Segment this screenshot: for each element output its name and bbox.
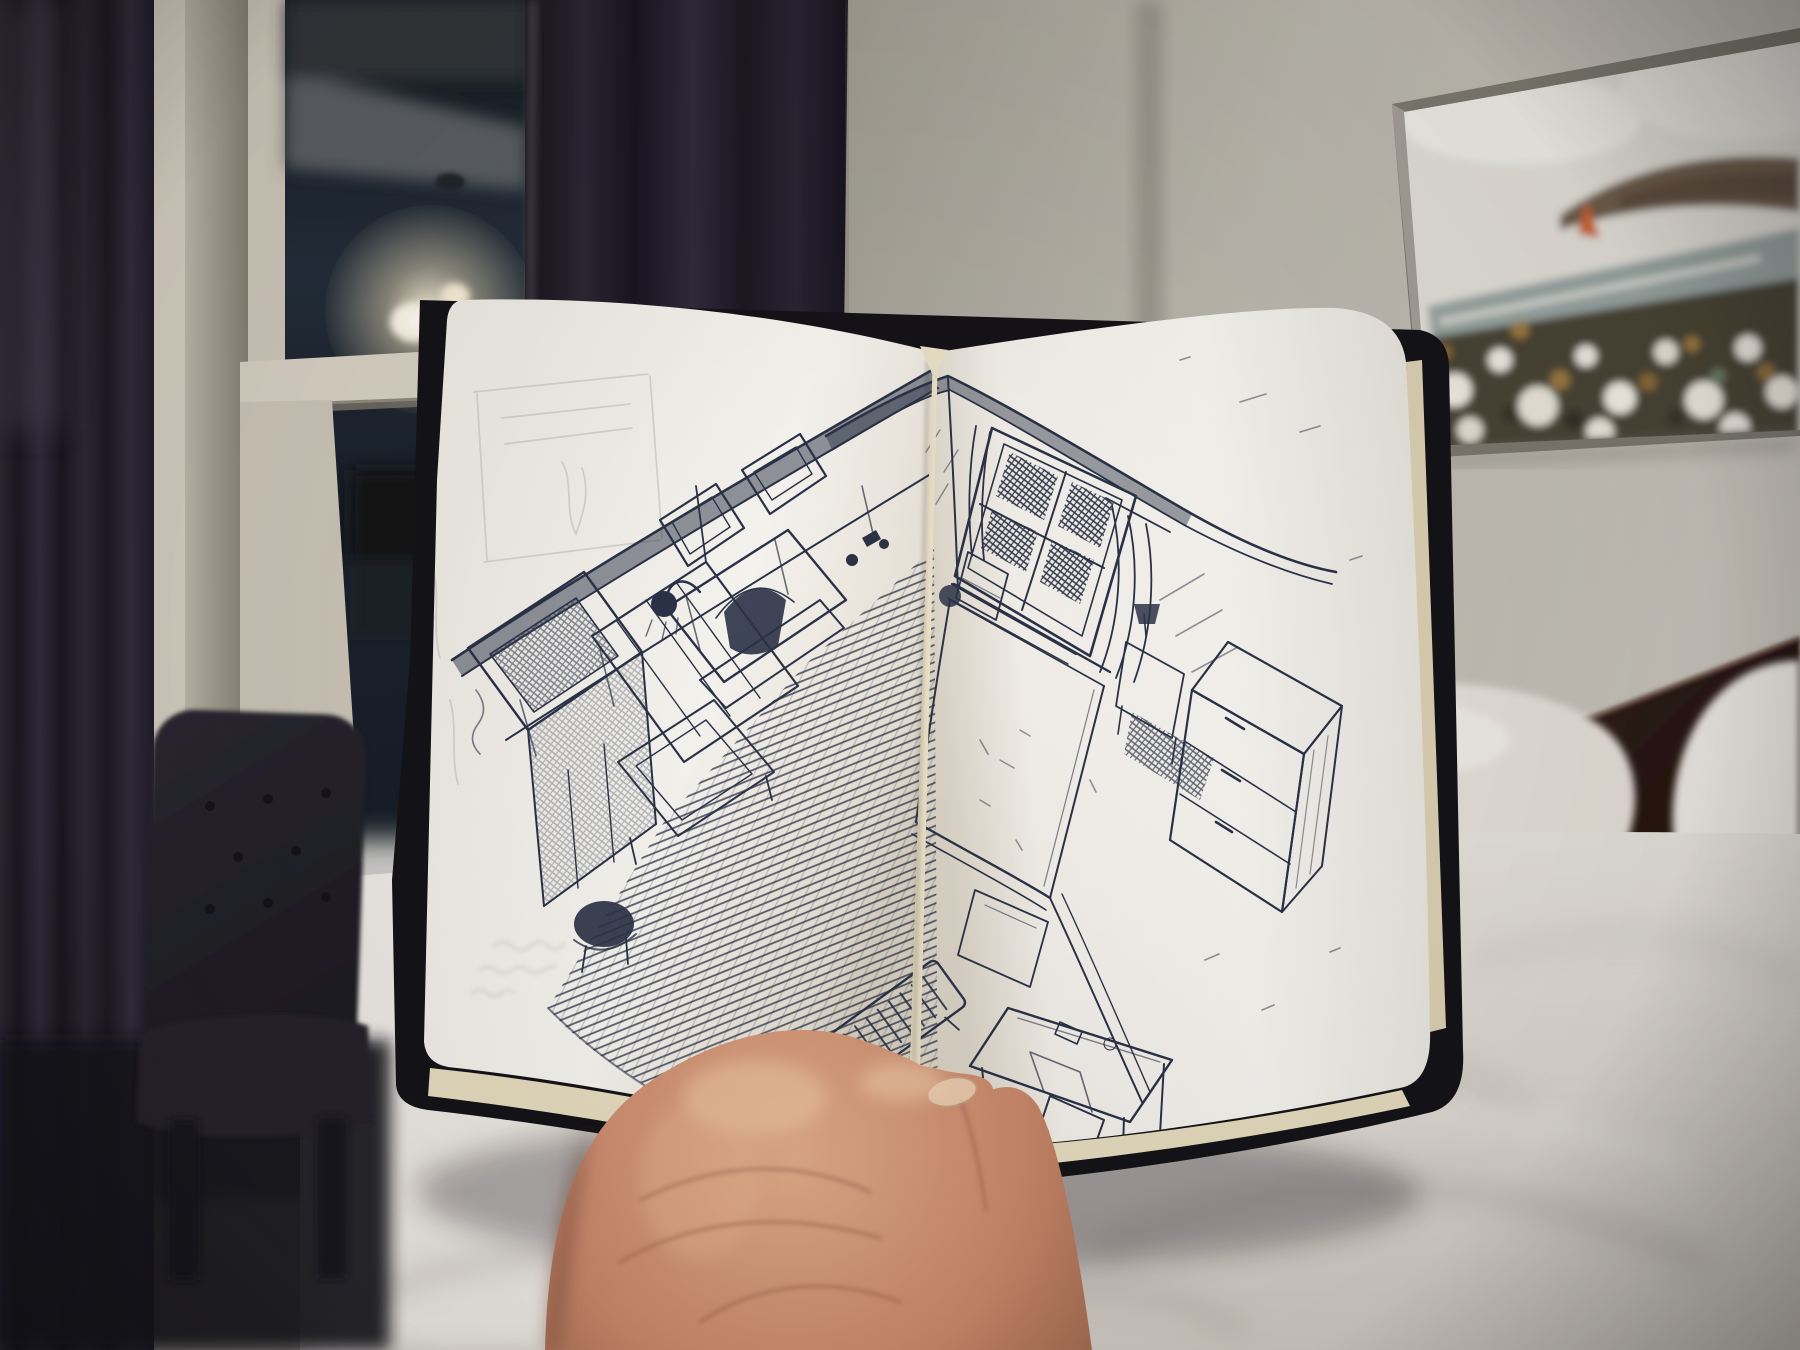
vignette bbox=[0, 0, 1800, 1350]
photo-stage: Hand holding an open sketchbook in a dim… bbox=[0, 0, 1800, 1350]
photo-recreation: Hand holding an open sketchbook in a dim… bbox=[0, 0, 1800, 1350]
